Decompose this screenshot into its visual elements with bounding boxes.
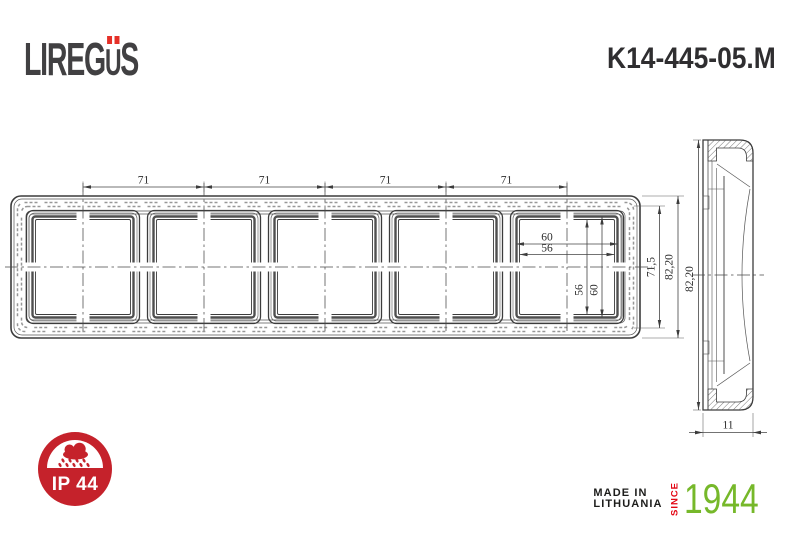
dim-label-spacing-3: 71 — [380, 175, 392, 187]
dim-label-side-overall-height: 82,20 — [684, 266, 696, 292]
dim-label-frame-overall-height: 82,20 — [664, 254, 676, 280]
side-height-dimension: 82,20 — [684, 140, 701, 410]
founding-year: 1944 — [684, 482, 759, 516]
dim-label-window-inner-width: 56 — [541, 243, 553, 255]
ip-rating-label: IP 44 — [52, 474, 99, 495]
since-wrap: SINCE — [669, 481, 682, 517]
bottom-hatch-section — [708, 389, 753, 410]
dim-label-spacing-1: 71 — [138, 175, 150, 187]
ip44-badge: IP 44 — [38, 432, 112, 506]
dim-label-depth: 11 — [722, 420, 733, 432]
frame-opening-4 — [387, 183, 505, 334]
dim-label-window-inner-height: 56 — [574, 284, 586, 296]
dim-label-frame-inner-height: 71,5 — [646, 257, 658, 277]
made-in-block: MADE IN LITHUANIA SINCE 1944 — [593, 481, 777, 517]
frame-opening-1 — [24, 183, 142, 334]
dim-label-window-outer-height: 60 — [589, 284, 601, 296]
frame-opening-3 — [266, 183, 384, 334]
dim-label-spacing-2: 71 — [259, 175, 271, 187]
page: LIREGUS K14-445-05.M — [0, 0, 800, 533]
dim-label-spacing-4: 71 — [501, 175, 513, 187]
top-spacing-dimensions: 71 71 71 71 — [83, 175, 567, 193]
made-in-line2: LITHUANIA — [593, 499, 662, 511]
side-depth-dimension: 11 — [689, 413, 767, 437]
technical-drawing: 71 71 71 71 60 56 56 — [0, 0, 800, 533]
top-hatch-section — [708, 140, 753, 161]
side-view: 82,20 11 — [684, 140, 767, 437]
since-label: SINCE — [670, 482, 681, 516]
frame-opening-2 — [145, 183, 263, 334]
front-view: 71 71 71 71 60 56 56 — [5, 175, 684, 339]
frame-opening-5 — [508, 183, 626, 334]
made-in-text: MADE IN LITHUANIA — [593, 488, 662, 511]
